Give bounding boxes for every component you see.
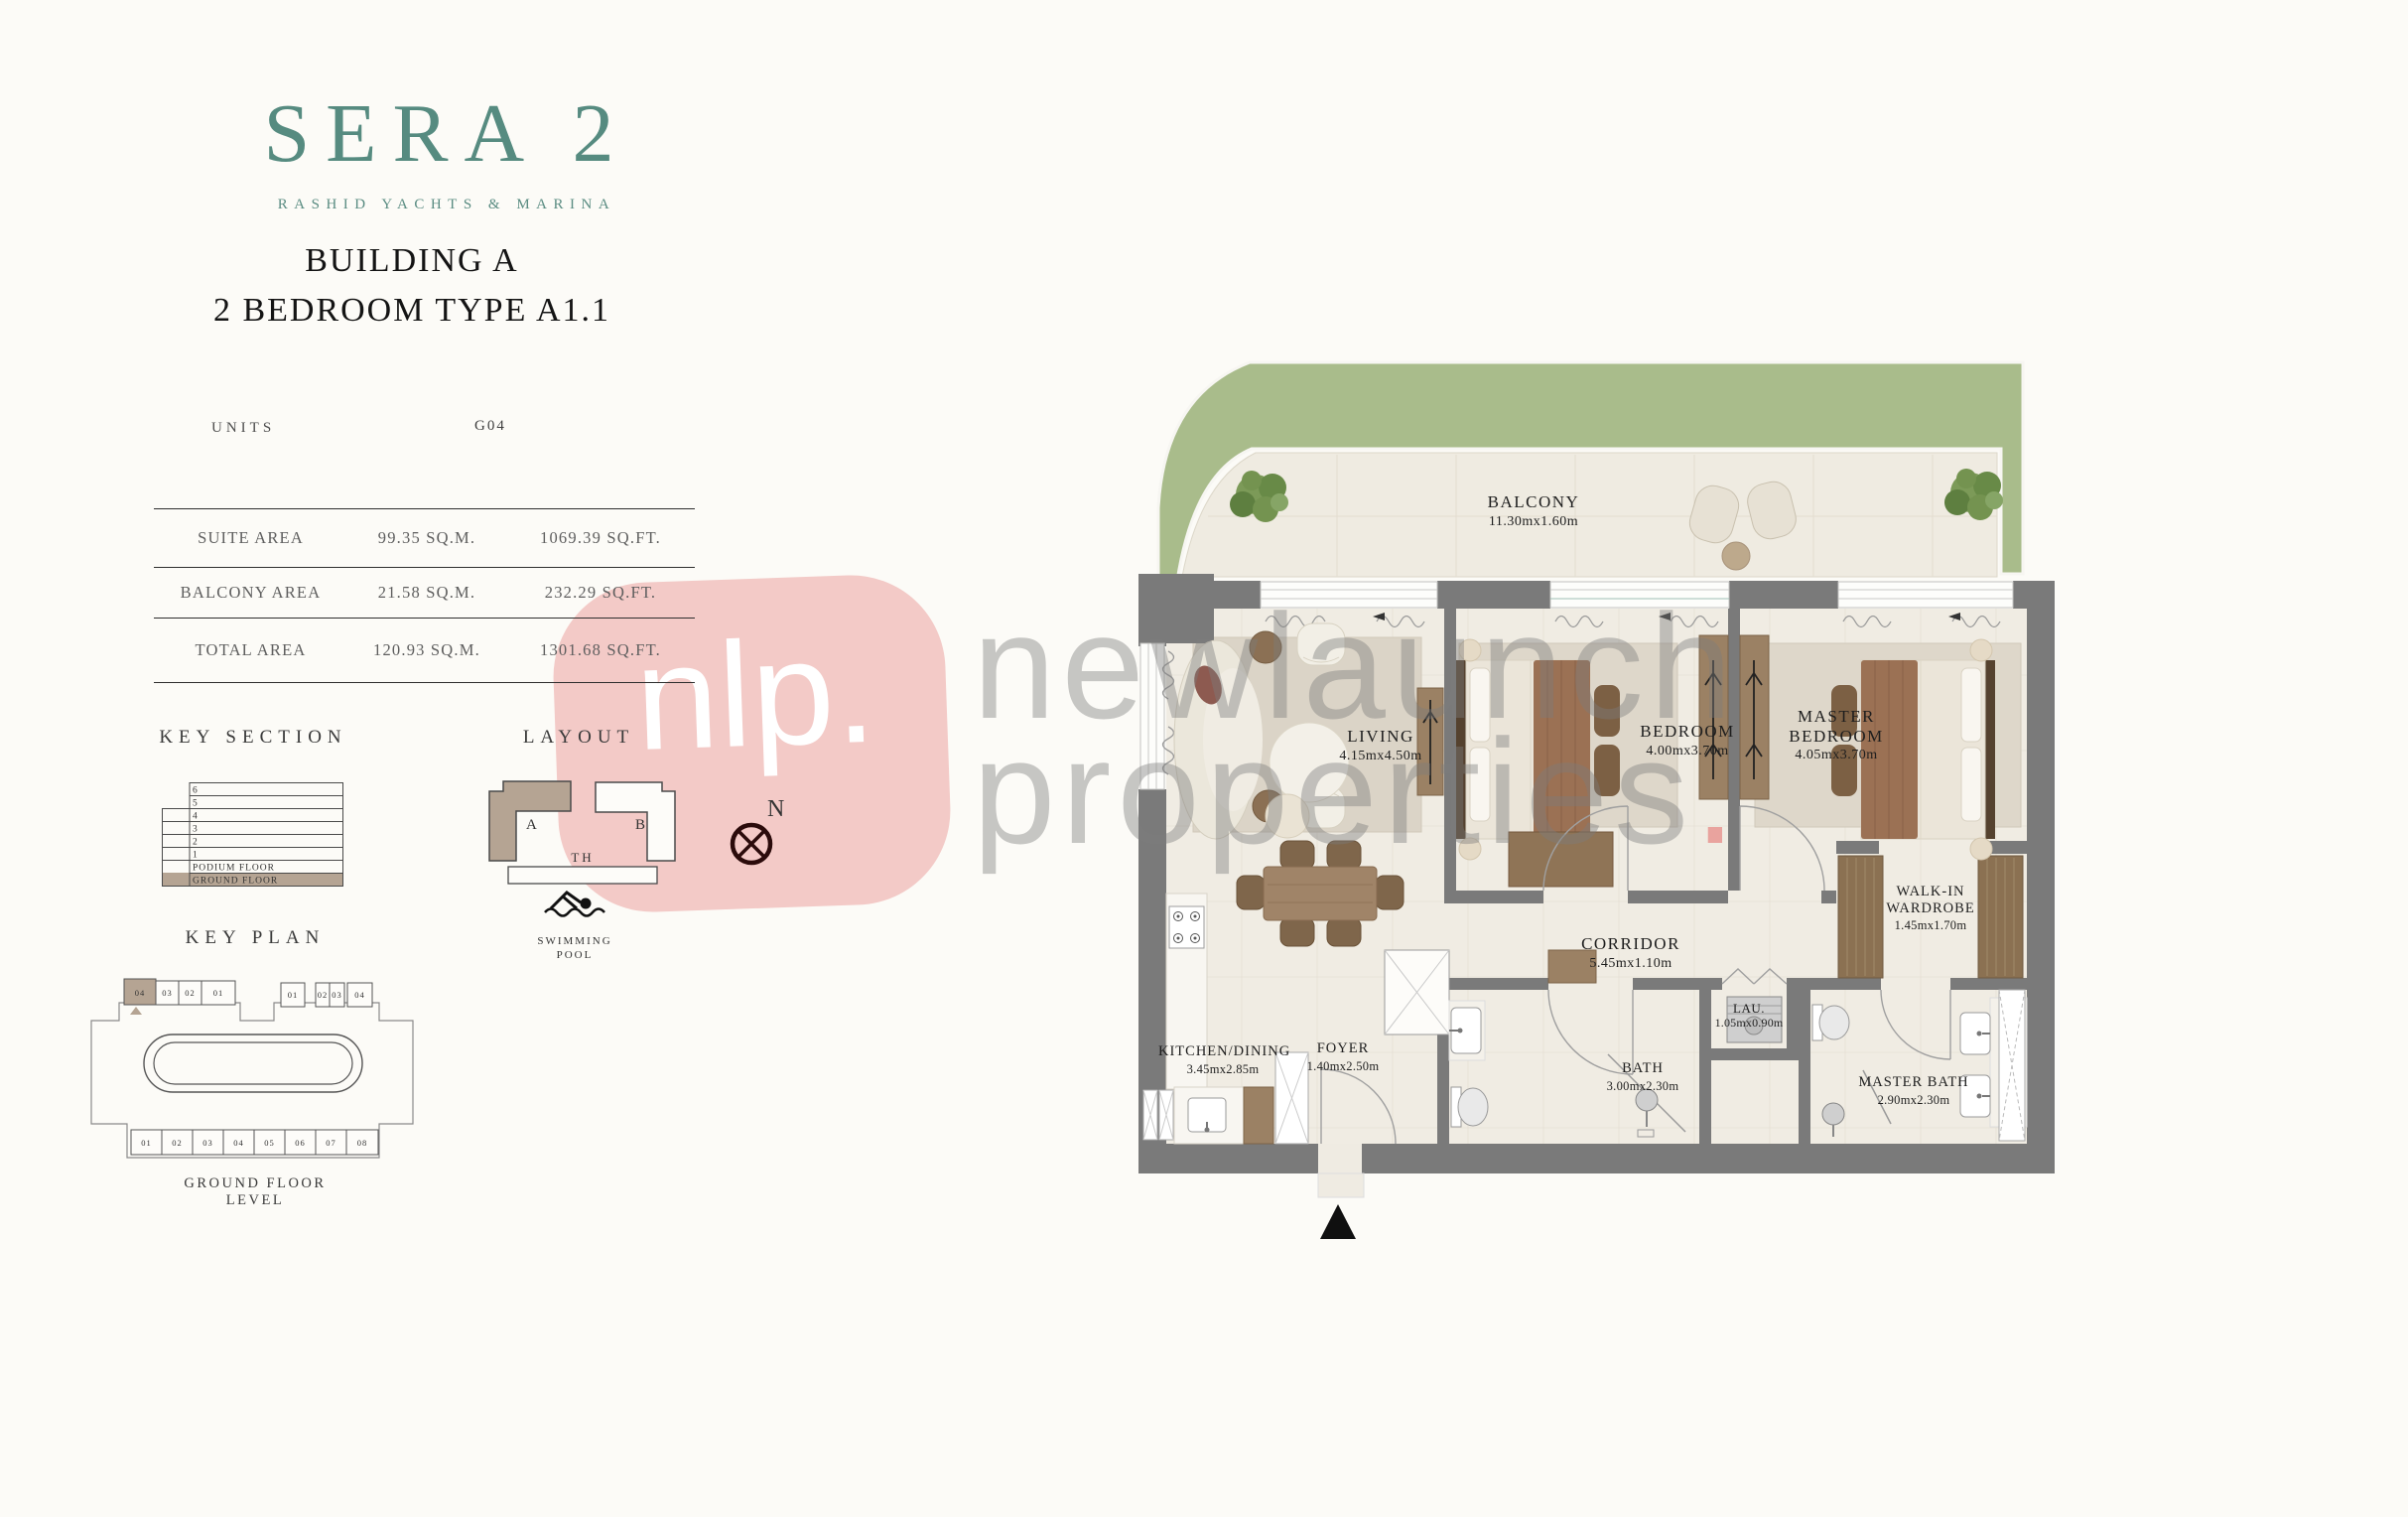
- table-row: TOTAL AREA 120.93 SQ.M. 1301.68 SQ.FT.: [154, 619, 695, 683]
- svg-text:03: 03: [202, 1138, 213, 1148]
- laundry-label: LAU. 1.05mx0.90m: [1709, 1002, 1789, 1031]
- north-compass-icon: N: [733, 796, 784, 863]
- walk-in-wardrobe-label: WALK-IN WARDROBE 1.45mx1.70m: [1861, 884, 2000, 933]
- entrance-direction-triangle: [1320, 1204, 1356, 1239]
- svg-text:SWIMMING: SWIMMING: [537, 935, 611, 947]
- svg-text:02: 02: [318, 990, 329, 1000]
- table-row: SUITE AREA 99.35 SQ.M. 1069.39 SQ.FT.: [154, 509, 695, 568]
- svg-text:03: 03: [162, 988, 173, 998]
- area-sqm: 21.58 SQ.M.: [347, 583, 506, 603]
- svg-text:3: 3: [193, 825, 198, 835]
- building-title: BUILDING A: [179, 236, 645, 286]
- svg-text:GROUND FLOOR: GROUND FLOOR: [193, 877, 278, 887]
- svg-text:1: 1: [193, 851, 198, 861]
- master-bath-label: MASTER BATH 2.90mx2.30m: [1854, 1074, 1973, 1107]
- area-label: TOTAL AREA: [154, 640, 347, 660]
- svg-text:05: 05: [264, 1138, 275, 1148]
- logo-subtitle: RASHID YACHTS & MARINA: [248, 197, 645, 213]
- bedroom-label: BEDROOM 4.00mx3.70m: [1608, 722, 1767, 759]
- key-plan-title: KEY PLAN: [156, 927, 354, 949]
- svg-text:4: 4: [193, 812, 198, 822]
- area-sqm: 120.93 SQ.M.: [347, 640, 506, 660]
- key-section-diagram: 6 5 4 3 2 1 PODIUM FLOOR GROUND FLOOR: [162, 782, 343, 888]
- floor-plan-drawing: [1138, 357, 2055, 1251]
- pool-outline: [144, 1034, 362, 1092]
- pool-inner: [154, 1042, 352, 1084]
- foyer-label: FOYER 1.40mx2.50m: [1293, 1040, 1393, 1073]
- svg-text:01: 01: [288, 990, 299, 1000]
- kitchen-dining-label: KITCHEN/DINING 3.45mx2.85m: [1158, 1043, 1287, 1076]
- bath-label: BATH 3.00mx2.30m: [1583, 1060, 1702, 1093]
- svg-text:N: N: [767, 796, 784, 822]
- entrance-step: [1318, 1173, 1364, 1197]
- brochure-page: SERA 2 RASHID YACHTS & MARINA BUILDING A…: [0, 0, 2408, 1517]
- master-bedroom-label: MASTER BEDROOM 4.05mx3.70m: [1772, 707, 1901, 763]
- unit-type-title: 2 BEDROOM TYPE A1.1: [179, 286, 645, 336]
- area-sqft: 232.29 SQ.FT.: [506, 583, 695, 603]
- logo-title: SERA 2: [248, 85, 645, 182]
- svg-text:5: 5: [193, 799, 198, 809]
- townhouse-strip: [508, 867, 657, 884]
- svg-text:01: 01: [141, 1138, 152, 1148]
- area-sqft: 1069.39 SQ.FT.: [506, 528, 695, 548]
- svg-text:01: 01: [213, 988, 224, 998]
- svg-text:POOL: POOL: [557, 949, 594, 961]
- svg-text:PODIUM FLOOR: PODIUM FLOOR: [193, 864, 275, 874]
- svg-text:02: 02: [185, 988, 196, 998]
- layout-diagram: A B TH SWIMMING POOL N: [479, 769, 807, 988]
- svg-text:A: A: [526, 817, 537, 833]
- entrance-threshold: [1318, 1144, 1362, 1173]
- key-section-title: KEY SECTION: [154, 727, 352, 749]
- svg-text:02: 02: [172, 1138, 183, 1148]
- page-title: BUILDING A 2 BEDROOM TYPE A1.1: [179, 236, 645, 336]
- area-label: SUITE AREA: [154, 528, 347, 548]
- table-row: BALCONY AREA 21.58 SQ.M. 232.29 SQ.FT.: [154, 568, 695, 619]
- living-label: LIVING 4.15mx4.50m: [1301, 727, 1460, 764]
- corridor-label: CORRIDOR 5.45mx1.10m: [1551, 934, 1710, 972]
- svg-text:04: 04: [354, 990, 365, 1000]
- area-sqm: 99.35 SQ.M.: [347, 528, 506, 548]
- units-value: G04: [474, 418, 506, 435]
- key-plan-diagram: 04 03 02 01 01 02 03 04 01 02 03 04 05 0…: [79, 973, 422, 1167]
- svg-text:B: B: [635, 817, 645, 833]
- svg-text:TH: TH: [571, 850, 594, 865]
- svg-text:08: 08: [357, 1138, 368, 1148]
- svg-text:03: 03: [332, 990, 342, 1000]
- svg-text:06: 06: [295, 1138, 306, 1148]
- layout-title: LAYOUT: [479, 727, 678, 749]
- svg-text:6: 6: [193, 786, 198, 796]
- svg-text:2: 2: [193, 838, 198, 848]
- foyer-closet: [1385, 950, 1449, 1034]
- svg-text:04: 04: [135, 988, 146, 998]
- svg-text:04: 04: [233, 1138, 244, 1148]
- svg-text:07: 07: [326, 1138, 336, 1148]
- unit-marker-triangle: [130, 1007, 142, 1015]
- area-sqft: 1301.68 SQ.FT.: [506, 640, 695, 660]
- swimmer-icon: [545, 893, 604, 916]
- units-label: UNITS: [211, 420, 275, 437]
- key-plan-caption: GROUND FLOOR LEVEL: [156, 1175, 354, 1209]
- area-label: BALCONY AREA: [154, 583, 347, 603]
- area-table: SUITE AREA 99.35 SQ.M. 1069.39 SQ.FT. BA…: [154, 508, 695, 683]
- floor-plan: BALCONY 11.30mx1.60m LIVING 4.15mx4.50m …: [1138, 357, 2055, 1251]
- balcony-label: BALCONY 11.30mx1.60m: [1434, 492, 1633, 530]
